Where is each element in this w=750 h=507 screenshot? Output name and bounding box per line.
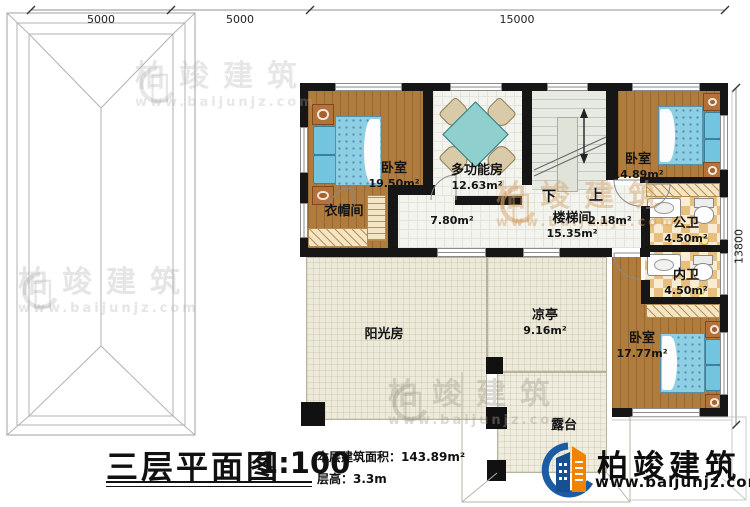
room-label-pavilion: 凉亭 9.16m² xyxy=(503,308,587,337)
building-area-note: 本层建筑面积：143.89m² xyxy=(317,448,465,465)
room-name: 公卫 xyxy=(644,216,728,232)
room-name: 多功能房 xyxy=(435,163,519,179)
floor-height-note: 层高：3.3m xyxy=(317,470,387,487)
room-name: 卧室 xyxy=(600,331,684,347)
door-bedroom-top-right xyxy=(614,180,640,206)
room-label-bedroom-top-right: 卧室 14.89m² xyxy=(596,152,680,181)
linework-overlay xyxy=(0,0,750,507)
building-area-label: 本层建筑面积： xyxy=(317,450,401,464)
room-area: 17.77m² xyxy=(600,347,684,360)
room-label-cloakroom: 衣帽间 xyxy=(302,204,386,220)
room-label-bedroom-bottom-right: 卧室 17.77m² xyxy=(600,331,684,360)
room-area: 14.89m² xyxy=(596,168,680,181)
room-area: 7.80m² xyxy=(410,214,494,227)
dim-top-3: 15000 xyxy=(494,13,540,26)
room-area: 15.35m² xyxy=(530,227,614,240)
room-name: 卧室 xyxy=(352,161,436,177)
room-area: 12.63m² xyxy=(435,179,519,192)
dimension-lines xyxy=(27,6,740,478)
floor-plan-sheet: 柏竣建筑 www.baijunjz.com 柏竣建筑 www.baijunjz.… xyxy=(0,0,750,507)
stair-up-label: 上 xyxy=(589,185,603,205)
stair-down-label: 下 xyxy=(542,186,556,206)
room-area: 9.16m² xyxy=(503,324,587,337)
room-name: 衣帽间 xyxy=(302,204,386,220)
dim-top-2: 5000 xyxy=(220,13,260,26)
title-underline xyxy=(106,481,312,483)
room-area: 19.50m² xyxy=(352,177,436,190)
room-area: 4.50m² xyxy=(644,284,728,297)
room-label-corridor: 7.80m² xyxy=(410,214,494,227)
room-label-inner-bath: 内卫 4.50m² xyxy=(644,268,728,297)
room-name: 凉亭 xyxy=(503,308,587,324)
room-label-bedroom-top-left: 卧室 19.50m² xyxy=(352,161,436,190)
room-name: 阳光房 xyxy=(342,327,426,343)
room-label-terrace: 露台 xyxy=(522,418,606,434)
room-name: 露台 xyxy=(522,418,606,434)
room-area: 2.18m² xyxy=(580,214,640,227)
door-public-bath xyxy=(646,184,670,208)
dim-right: 13800 xyxy=(733,224,746,270)
room-name: 内卫 xyxy=(644,268,728,284)
room-label-public-bath: 公卫 4.50m² xyxy=(644,216,728,245)
floor-height-label: 层高： xyxy=(317,472,353,486)
room-label-multifunction: 多功能房 12.63m² xyxy=(435,163,519,192)
door-bedroom-bottom-right xyxy=(614,253,640,279)
floor-height-value: 3.3m xyxy=(353,472,387,486)
brand-logo-icon xyxy=(545,446,590,494)
brand-url: www.baijunjz.com xyxy=(595,473,750,491)
room-area: 4.50m² xyxy=(644,232,728,245)
roof-plan xyxy=(7,13,195,435)
building-area-value: 143.89m² xyxy=(401,450,465,464)
room-label-sunroom: 阳光房 xyxy=(342,327,426,343)
title-underline-2 xyxy=(106,486,312,487)
room-name: 卧室 xyxy=(596,152,680,168)
dim-top-1: 5000 xyxy=(81,13,121,26)
room-label-landing: 2.18m² xyxy=(580,214,640,227)
